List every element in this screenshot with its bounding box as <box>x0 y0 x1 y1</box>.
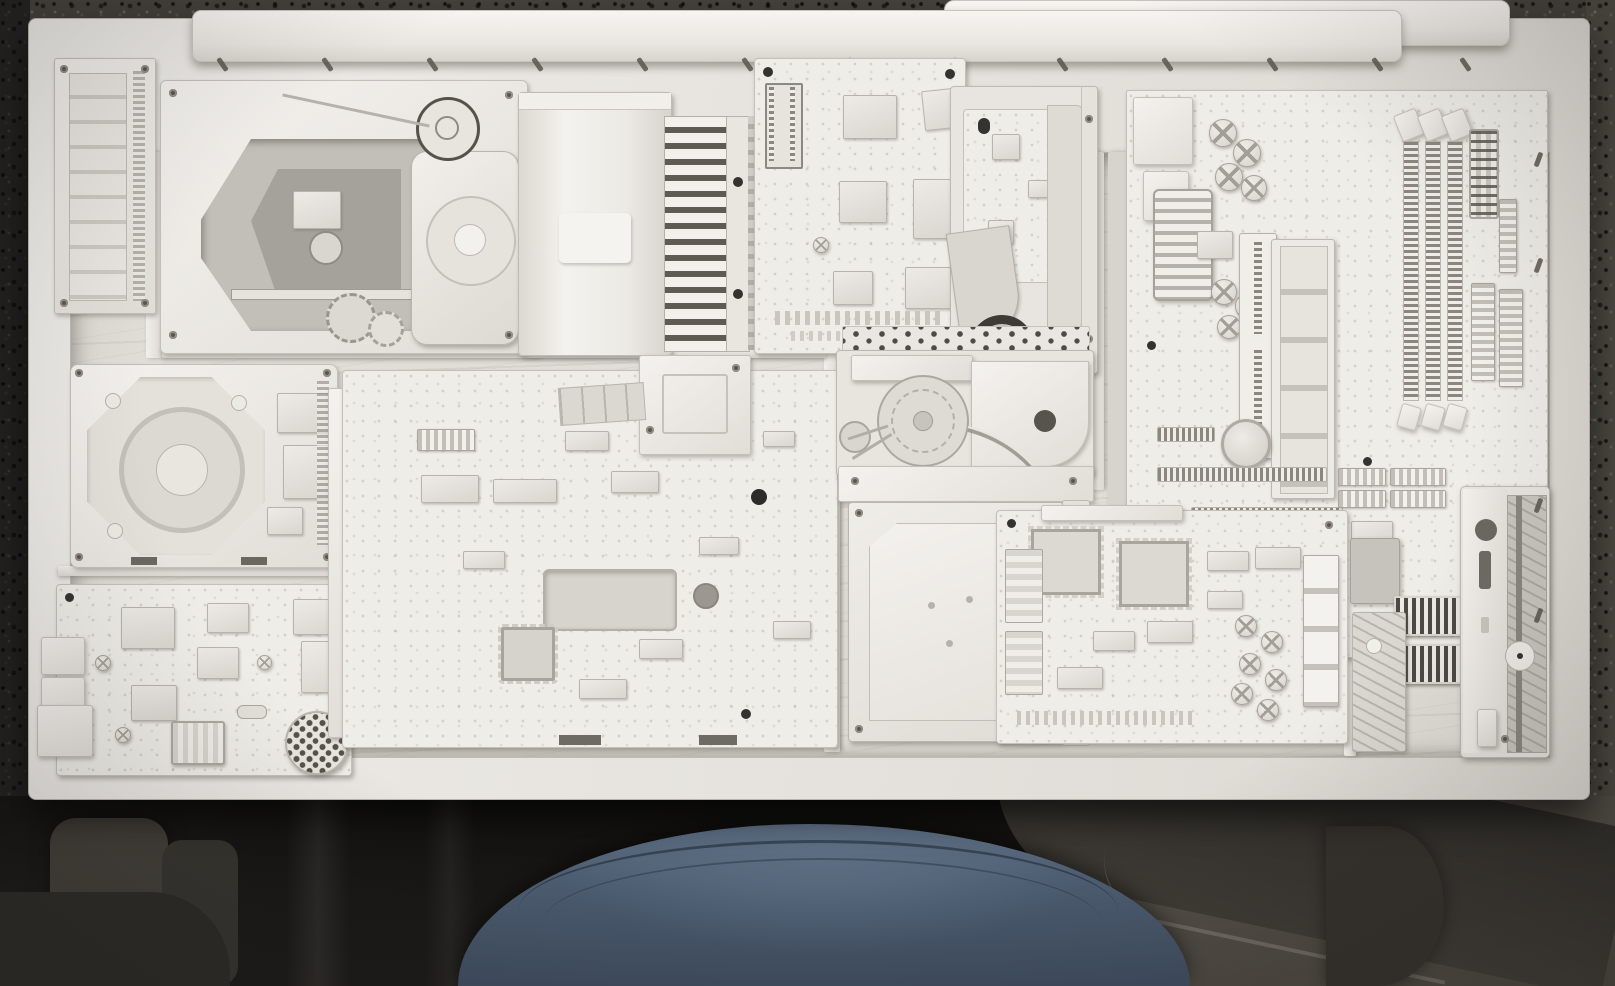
solder-pad-row <box>775 311 945 325</box>
spine-hole <box>733 177 743 187</box>
spindle-hub <box>454 224 486 256</box>
pci-slot-row <box>1157 467 1327 482</box>
ic-chip <box>1147 621 1193 643</box>
spine-hole <box>733 289 743 299</box>
crystal-oscillator <box>237 705 267 719</box>
ic-chip <box>1093 631 1135 651</box>
board-hole-black <box>751 489 767 505</box>
screw-dot <box>75 553 83 561</box>
dimm-latch-clip <box>1442 403 1468 432</box>
chair-seat-corner <box>0 892 230 986</box>
terrazzo-floor-right <box>1586 0 1615 812</box>
spindle-disc <box>1505 641 1535 671</box>
ic-chip <box>131 685 177 721</box>
pcb-hole <box>978 118 990 134</box>
screw-dot <box>1085 115 1093 123</box>
sled-rail <box>231 289 423 300</box>
spindle-motor-ring <box>119 407 245 533</box>
ic-chip <box>773 621 811 639</box>
dimm-sockets <box>1395 111 1471 441</box>
transformer <box>171 721 225 765</box>
top-ledge-main <box>192 10 1402 62</box>
relay-block-column <box>1303 555 1339 707</box>
screw-dot <box>60 299 68 307</box>
ribbon-cable <box>558 382 646 426</box>
dip-socket <box>765 83 803 169</box>
ic-chip <box>763 431 795 447</box>
electrolytic-capacitor <box>1235 615 1257 637</box>
channel-groove <box>1516 496 1522 752</box>
bezel-round-hole <box>1475 519 1497 541</box>
capacitor <box>95 655 111 671</box>
screw-dot <box>141 299 149 307</box>
controller-board <box>754 58 966 354</box>
bezel-channel <box>1507 495 1547 753</box>
power-block <box>1133 97 1193 165</box>
board-hole-gray <box>693 583 719 609</box>
mount-notch <box>131 557 157 565</box>
electrolytic-capacitor <box>1265 669 1287 691</box>
idc-socket <box>1338 490 1386 508</box>
atx-power-connector <box>1469 129 1499 219</box>
ic-chip <box>992 134 1020 160</box>
ic-chip <box>579 679 627 699</box>
ic-chip <box>121 607 175 649</box>
cover-emboss <box>559 213 631 263</box>
dimm-slot <box>1425 141 1441 401</box>
edge-notch <box>699 735 737 745</box>
contact-pad-strip <box>133 71 145 301</box>
gray-heatsink-block <box>1350 538 1400 604</box>
screw-dot <box>141 65 149 73</box>
cdrom-mechanism <box>160 80 528 354</box>
top-connector-strip <box>1041 505 1183 521</box>
electrolytic-capacitor <box>1215 163 1243 191</box>
screw-dot <box>323 369 331 377</box>
daughter-board <box>639 355 751 455</box>
qfp-chip <box>1119 541 1189 607</box>
dip-chip-vertical <box>1005 631 1043 695</box>
electrolytic-capacitor <box>1239 653 1261 675</box>
ribbon-comb-connector <box>1499 199 1517 273</box>
drive-chassis-curve <box>1047 105 1083 351</box>
jeans-seam-2 <box>542 858 1102 986</box>
photo-scene <box>0 0 1615 986</box>
motor-hub <box>156 444 208 496</box>
heatsink <box>664 116 764 350</box>
ic-chip <box>207 603 249 633</box>
screw-dot <box>505 91 513 99</box>
board-cutout <box>543 569 677 631</box>
ram-chip-pads <box>1280 246 1328 494</box>
eject-button <box>1477 709 1497 747</box>
screw-dot <box>60 65 68 73</box>
thin-wire-strand <box>282 93 429 127</box>
solder-pad-row <box>1017 711 1197 725</box>
table-leg-reflection <box>286 796 350 986</box>
qfp-chip <box>501 627 555 681</box>
screw-dot <box>1069 477 1077 485</box>
bezel-slot <box>1479 551 1491 589</box>
screw-dot <box>505 331 513 339</box>
plate-bump <box>107 523 123 539</box>
ic-chip <box>639 639 683 659</box>
ic-chip <box>463 551 505 569</box>
screw-dot <box>169 331 177 339</box>
screw-dot <box>855 509 863 517</box>
idc-header <box>1471 283 1495 381</box>
cmos-battery <box>1221 419 1271 469</box>
electrolytic-capacitor <box>1261 631 1283 653</box>
dimm-latch-clip <box>1420 403 1446 432</box>
screw-dot <box>732 364 740 372</box>
mount-hole <box>1363 457 1372 466</box>
drive-rail <box>838 466 1094 502</box>
dip-chip-vertical <box>1005 549 1043 623</box>
modem-card <box>56 584 352 776</box>
heatsink-spine <box>726 116 750 352</box>
heatsink-fins <box>664 116 730 352</box>
pci-slot-row <box>1157 427 1215 442</box>
pivot-ball <box>1366 638 1382 654</box>
mount-hole <box>763 67 773 77</box>
hard-drive-pcb <box>70 364 338 568</box>
ic-chip <box>843 95 897 139</box>
screw-dot <box>855 725 863 733</box>
plate-bump <box>231 395 247 411</box>
board-hole-small <box>741 709 751 719</box>
dip-pins <box>790 87 795 161</box>
screw-dot <box>646 426 654 434</box>
ic-chip <box>1197 231 1233 259</box>
slot-contacts <box>1254 242 1262 334</box>
ic-chip <box>1057 667 1103 689</box>
electrolytic-capacitor <box>1217 315 1241 339</box>
connector-strip <box>417 429 475 451</box>
mount-notch <box>241 557 267 565</box>
dip-pins <box>769 87 774 161</box>
under-table-shadow <box>0 796 1615 986</box>
simm-memory-module <box>54 58 156 314</box>
screw-dot <box>851 477 859 485</box>
lid-dot <box>966 596 973 603</box>
laser-carriage <box>293 191 341 229</box>
ic-chip <box>421 475 479 503</box>
angled-card-edge <box>1352 612 1406 752</box>
main-logic-board <box>342 370 838 748</box>
ic-chip <box>493 479 557 503</box>
pulley-center <box>435 116 459 140</box>
dimm-slot <box>1447 141 1463 401</box>
gear-small <box>368 311 404 347</box>
mount-hole <box>65 593 74 602</box>
capacitor <box>257 655 272 670</box>
ic-chip <box>565 431 609 451</box>
laser-lens <box>309 231 343 265</box>
ic-chip <box>267 507 303 535</box>
rj11-jack-dual <box>37 705 93 757</box>
electrolytic-capacitor <box>1257 699 1279 721</box>
ic-chip <box>1207 551 1249 571</box>
lid-dot <box>946 640 953 647</box>
edge-notch <box>559 735 601 745</box>
capacitor <box>115 727 131 743</box>
dimm-slot <box>1403 141 1419 401</box>
led-window <box>1481 617 1489 633</box>
mount-hole <box>945 69 955 79</box>
ic-chip <box>197 647 239 679</box>
screw-dot <box>75 369 83 377</box>
idc-header <box>1499 289 1523 387</box>
idc-socket <box>1390 490 1446 508</box>
audio-board <box>996 510 1348 744</box>
spindle-platform <box>411 151 519 345</box>
mount-hole <box>1147 341 1156 350</box>
cover-lip <box>519 93 671 110</box>
screw-dot <box>1501 735 1509 743</box>
rj11-jack <box>41 637 85 675</box>
mount-hole <box>1007 519 1016 528</box>
screw-dot <box>169 89 177 97</box>
electrolytic-capacitor <box>1209 119 1237 147</box>
belt-pulley-wheel <box>416 97 480 161</box>
memory-chip-column <box>69 73 127 301</box>
ic-chip <box>1255 547 1301 569</box>
vertical-ram-stick <box>1271 239 1335 499</box>
electrolytic-capacitor <box>1231 683 1253 705</box>
ic-chip <box>839 181 887 223</box>
lid-dot <box>928 602 935 609</box>
electrolytic-capacitor <box>1241 175 1267 201</box>
screw-dot <box>1325 521 1333 529</box>
disc-center <box>1517 653 1523 659</box>
electrolytic-capacitor <box>1233 139 1261 167</box>
capacitor <box>813 237 829 253</box>
idc-socket <box>1338 468 1386 486</box>
ic-chip <box>699 537 739 555</box>
ic-chip <box>833 271 873 305</box>
pulley-hub <box>913 411 933 431</box>
idc-socket <box>1390 468 1446 486</box>
ic-chip <box>611 471 659 493</box>
ic-chip <box>1207 591 1243 609</box>
electrolytic-capacitor <box>1211 279 1237 305</box>
bezel-face <box>1463 489 1507 753</box>
plate-bump <box>105 393 121 409</box>
terrazzo-floor-left <box>0 0 30 812</box>
drive-top-cover <box>518 92 672 356</box>
daughter-board-frame <box>662 374 728 434</box>
dimm-latch-clip <box>1396 403 1422 432</box>
